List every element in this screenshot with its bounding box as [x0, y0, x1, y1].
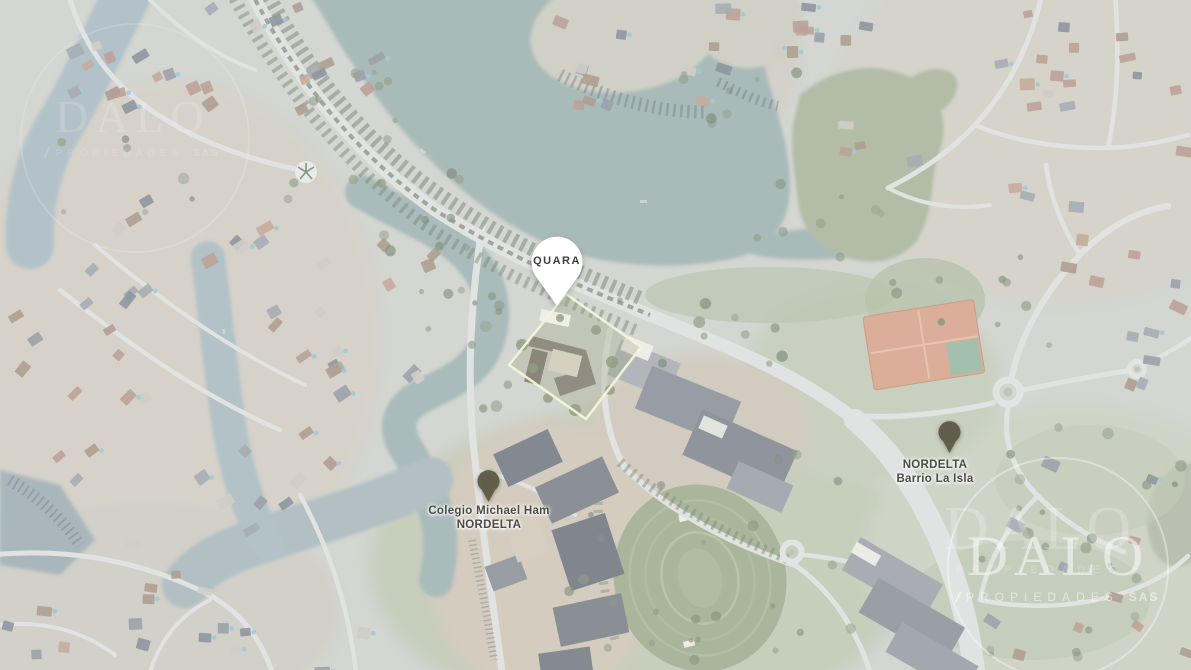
label-line-2: Barrio La Isla: [843, 472, 1027, 486]
watermark-suffix: SAS: [1129, 590, 1160, 604]
watermark-brand: DALO: [933, 528, 1183, 585]
pin-shape: [475, 469, 502, 504]
colegio-michael-ham-label: Colegio Michael Ham NORDELTA: [397, 504, 581, 532]
label-line-1: NORDELTA: [843, 458, 1027, 472]
quara-pin[interactable]: QUARA: [529, 236, 585, 308]
watermark-slash: [954, 591, 960, 603]
label-line-2: NORDELTA: [397, 518, 581, 532]
watermark-bottom-right: DALO PROPIEDADESSAS: [933, 528, 1183, 604]
balloon-pin-shape: [529, 236, 585, 308]
watermark-suffix: SAS: [193, 148, 220, 159]
barrio-la-isla-label: NORDELTA Barrio La Isla: [843, 458, 1027, 486]
label-line-1: Colegio Michael Ham: [397, 504, 581, 518]
watermark-slash: [44, 146, 50, 158]
colegio-michael-ham-pin[interactable]: [475, 469, 502, 504]
pin-shape: [936, 420, 963, 455]
watermark-word: PROPIEDADES: [966, 590, 1119, 604]
quara-pin-label: QUARA: [529, 255, 585, 267]
watermark-word: PROPIEDADES: [56, 148, 183, 159]
satellite-map-image: DALO PROPIEDADESSAS DALO PROPIEDADES DAL…: [0, 0, 1191, 670]
barrio-la-isla-pin[interactable]: [936, 420, 963, 455]
watermark-brand: DALO: [25, 94, 241, 140]
